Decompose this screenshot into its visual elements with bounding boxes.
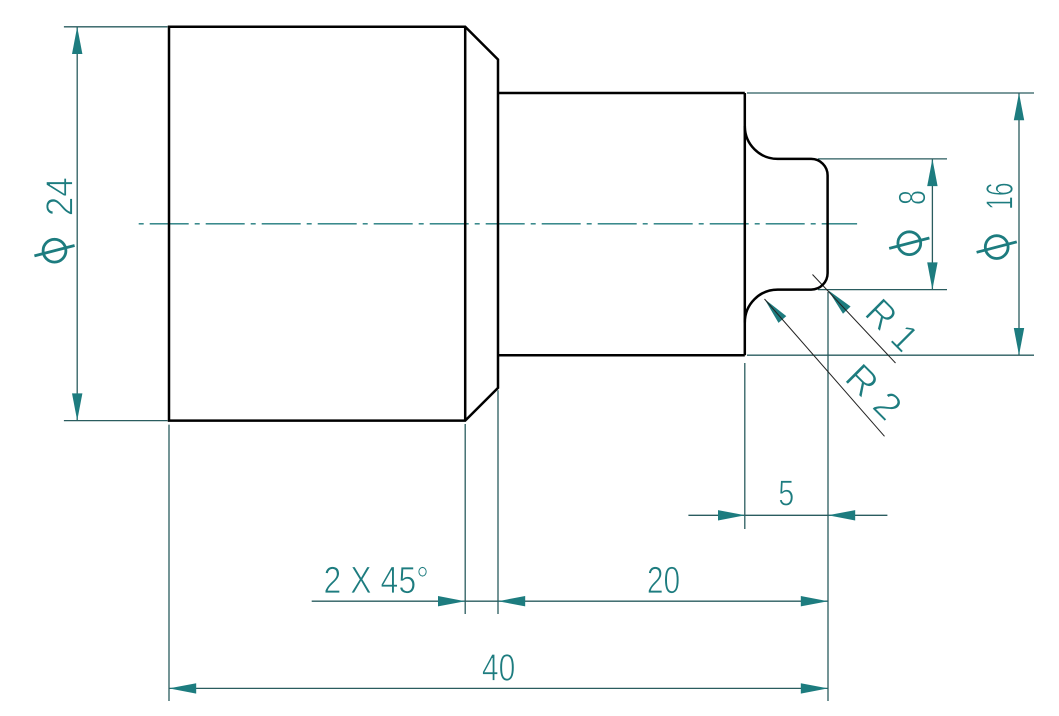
svg-text:2 X 45°: 2 X 45° xyxy=(324,560,430,602)
svg-text:24: 24 xyxy=(40,177,82,216)
svg-text:16: 16 xyxy=(980,182,1022,210)
svg-text:40: 40 xyxy=(482,648,515,690)
svg-text:20: 20 xyxy=(647,560,680,602)
svg-text:8: 8 xyxy=(892,190,934,205)
svg-text:5: 5 xyxy=(778,473,794,514)
